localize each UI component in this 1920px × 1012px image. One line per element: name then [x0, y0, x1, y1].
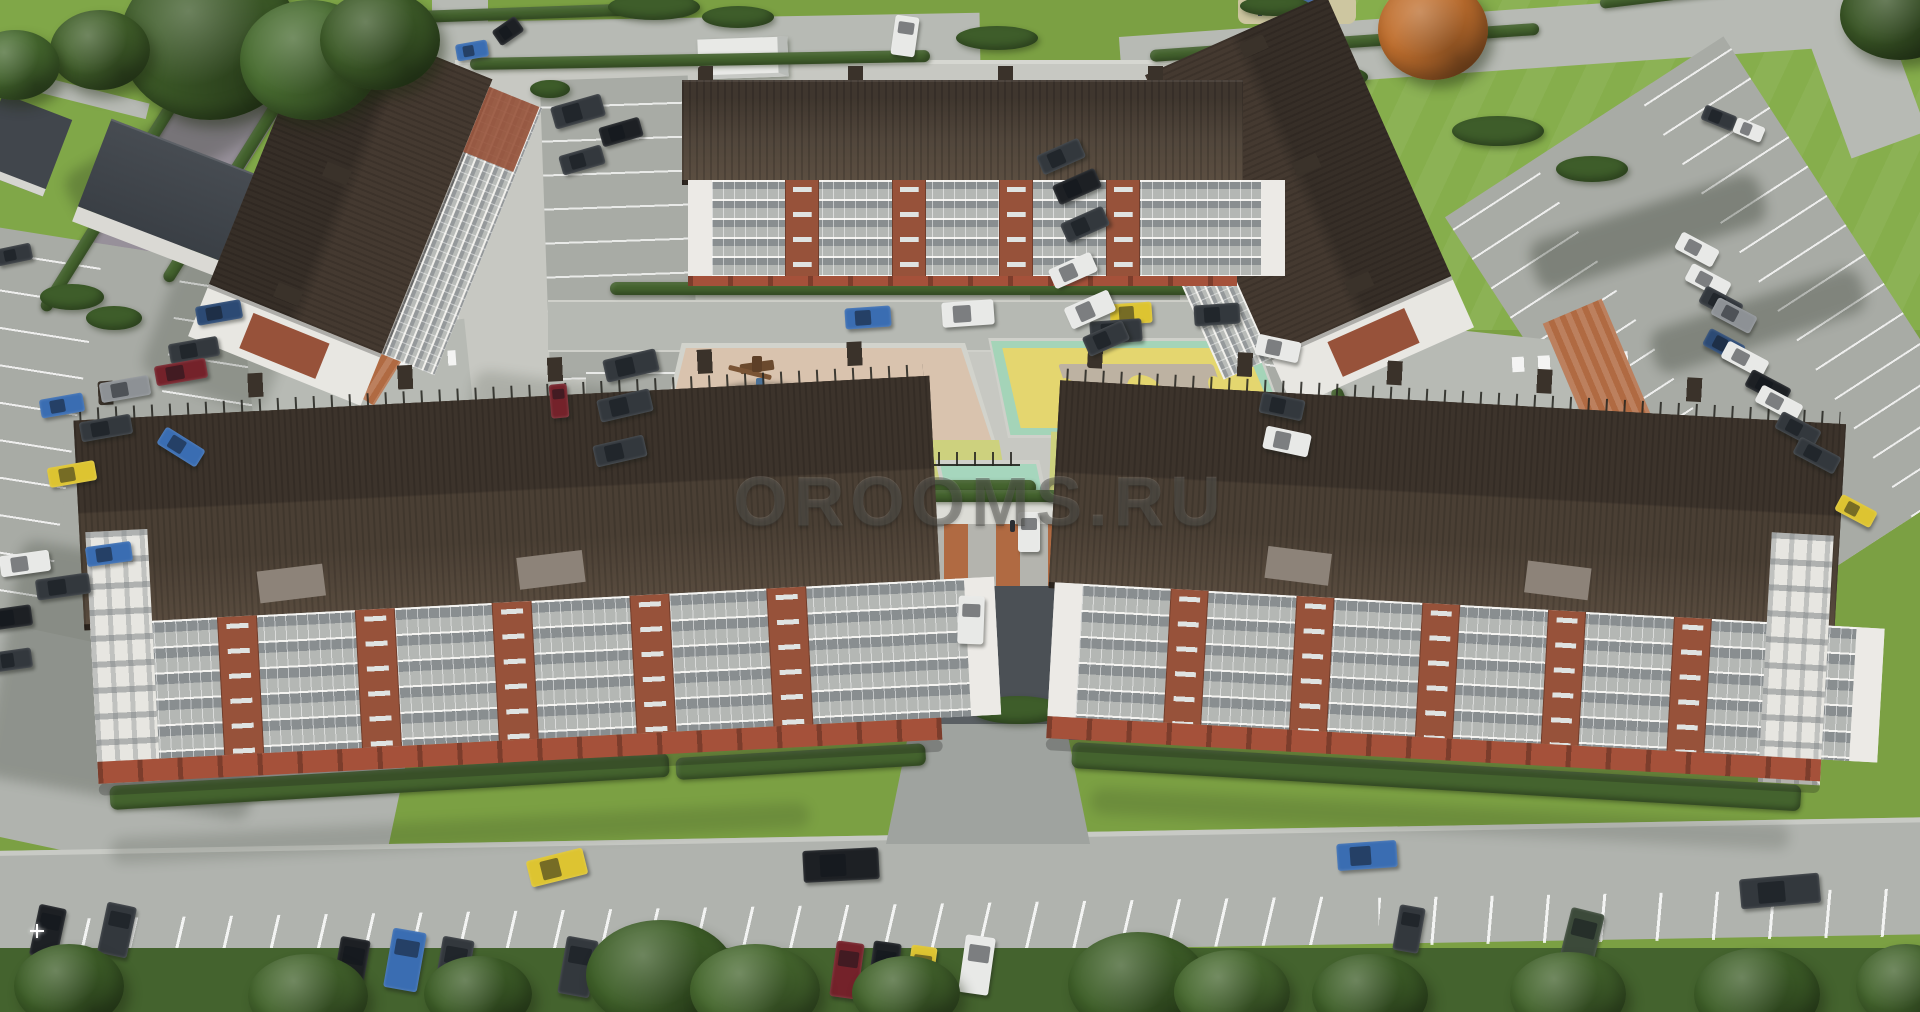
tree — [1856, 944, 1920, 1012]
tree — [424, 956, 532, 1012]
tree — [248, 954, 368, 1012]
tree — [1378, 0, 1488, 80]
tree — [1312, 954, 1428, 1012]
tree — [1510, 952, 1626, 1012]
aerial-render-canvas: OROOMS.RU — [0, 0, 1920, 1012]
tree — [320, 0, 440, 90]
tree — [1694, 948, 1820, 1012]
tree — [14, 944, 124, 1012]
watermark: OROOMS.RU — [700, 462, 1260, 542]
tree — [852, 956, 960, 1012]
tree — [1840, 0, 1920, 60]
tree — [50, 10, 150, 90]
